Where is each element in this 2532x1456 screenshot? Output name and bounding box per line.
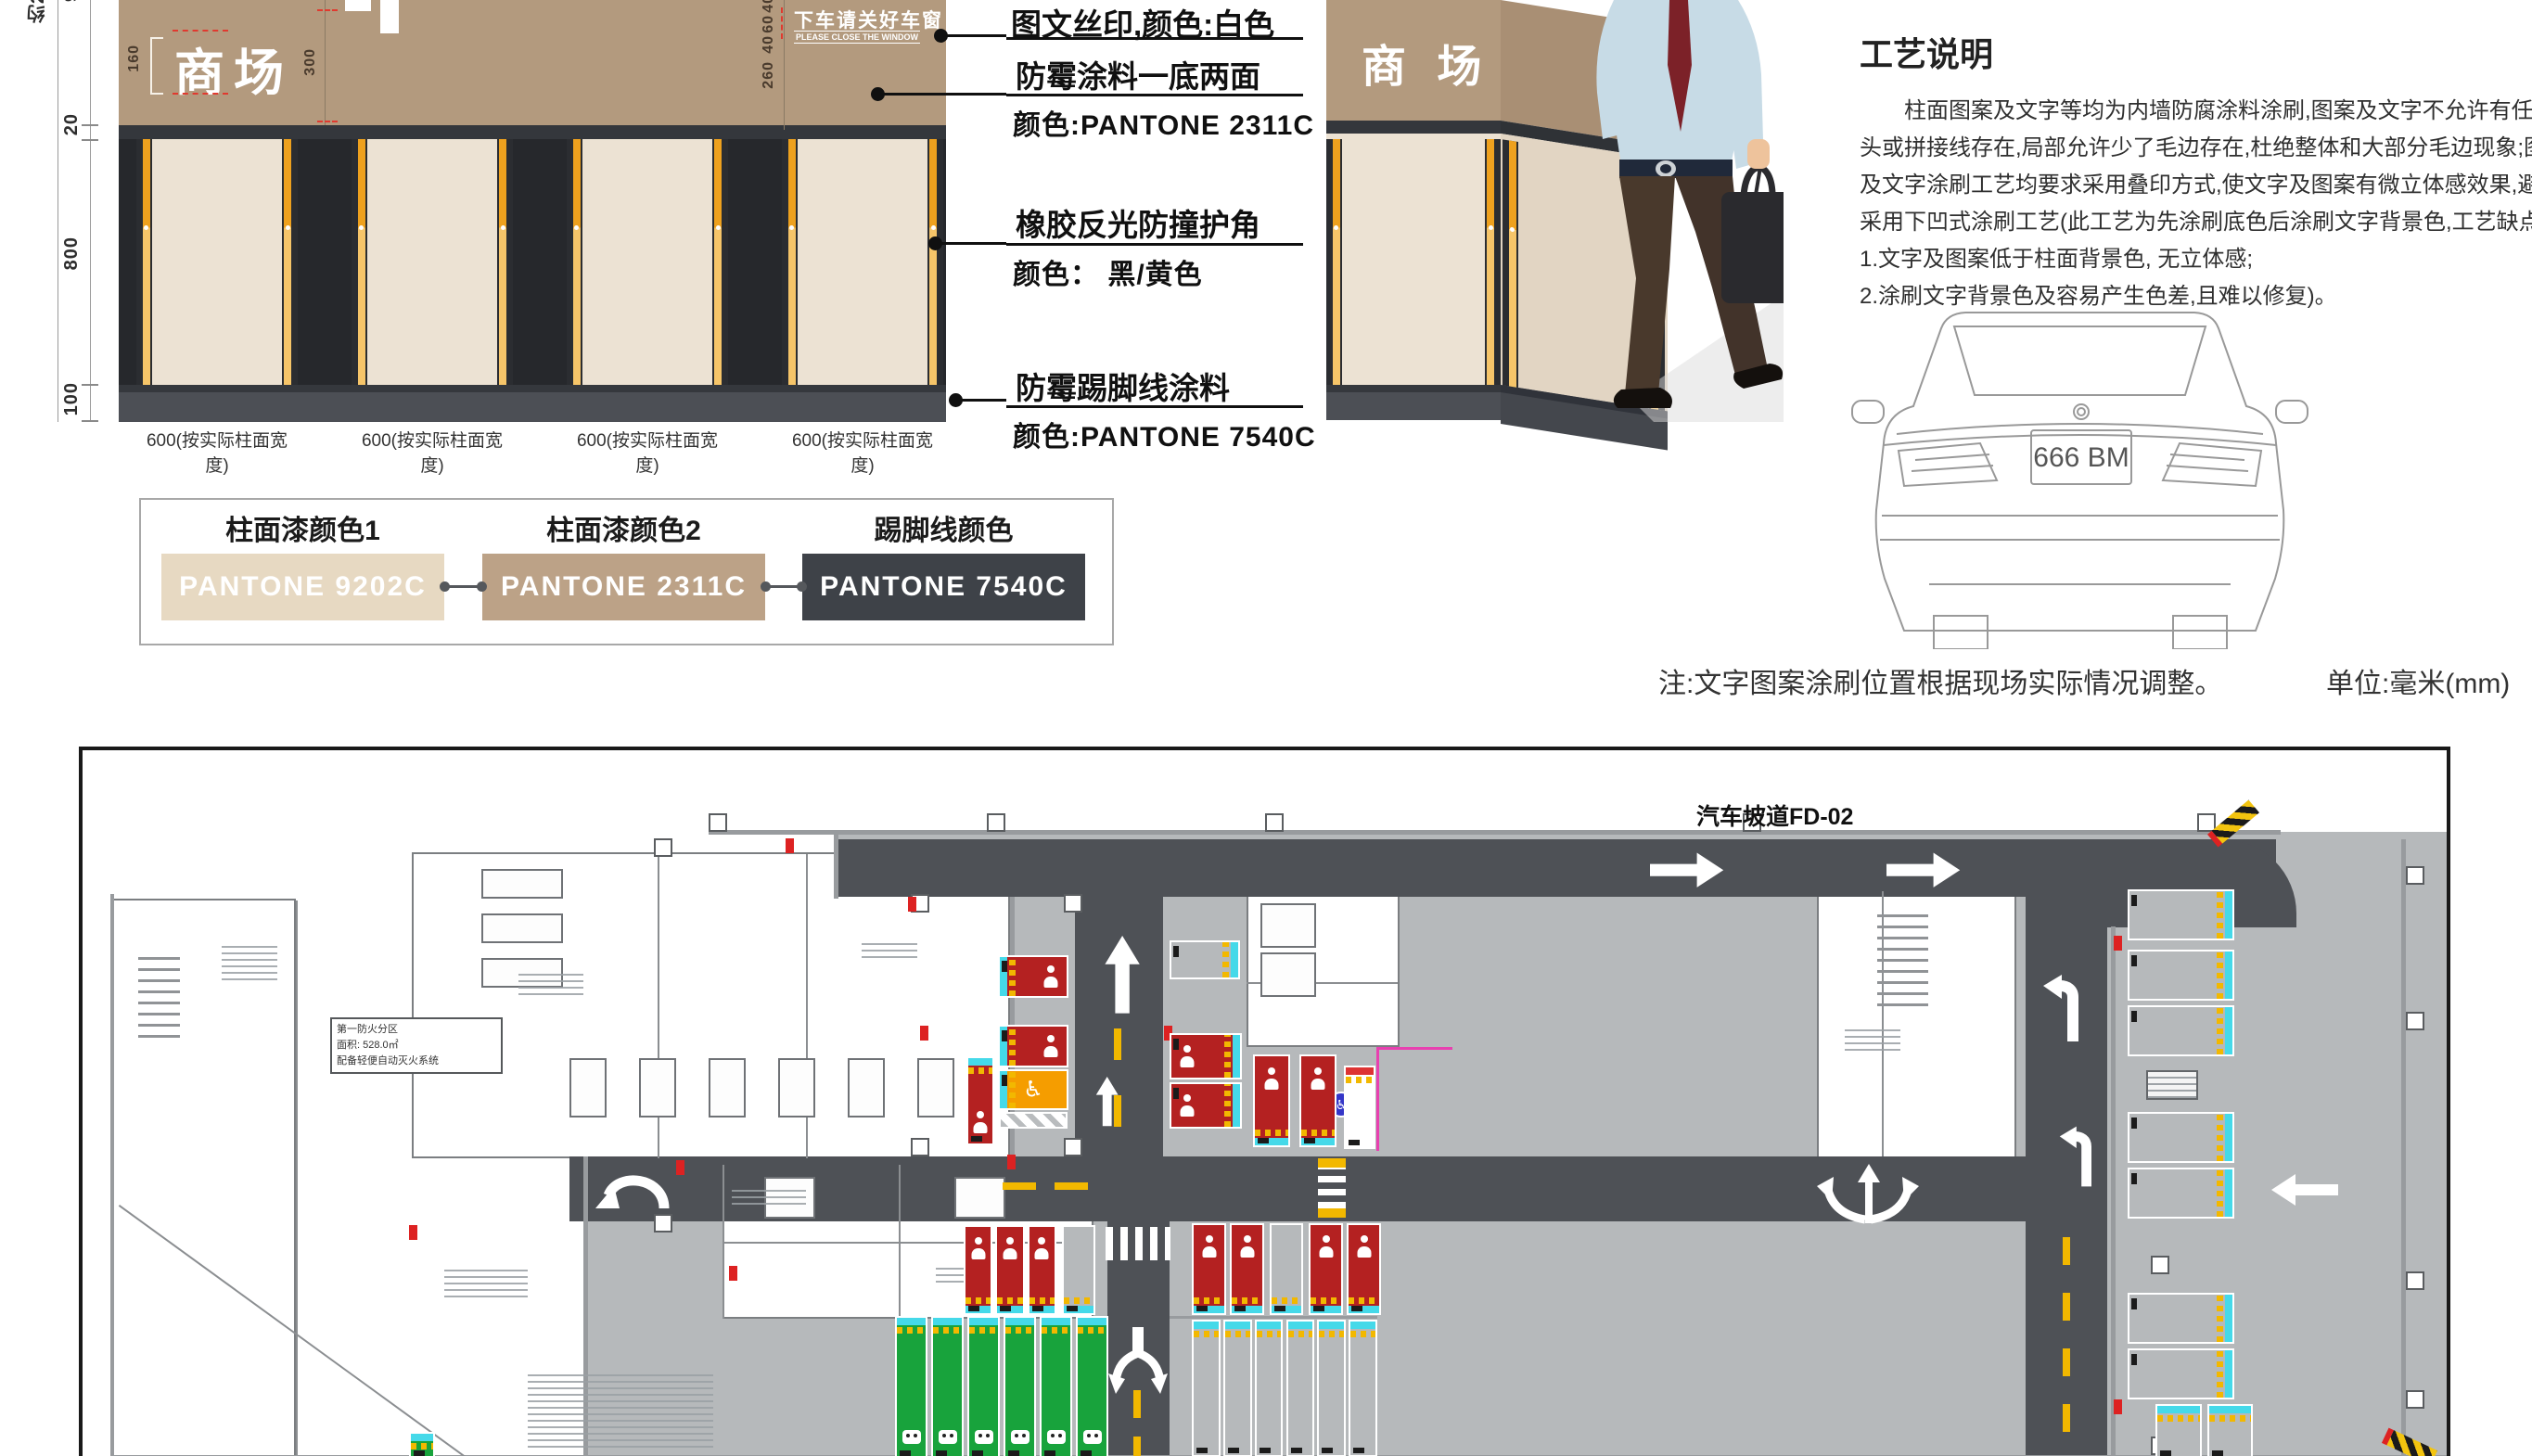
swatch-connector-dot (477, 581, 487, 592)
swatch-connector-dot (797, 581, 807, 592)
leader-line (940, 34, 1006, 37)
car-deck-line (1897, 424, 2263, 434)
corner-guard (282, 139, 298, 385)
corner-guard (927, 139, 943, 385)
corner-guard (1485, 139, 1501, 385)
process-note-line: 头或拼接线存在,局部允许少了毛边存在,杜绝整体和大部分毛边现象;图 (1860, 130, 2532, 167)
dim-line-sign (784, 0, 785, 130)
road-arrow-right (1650, 853, 1723, 888)
leader-line (935, 242, 1006, 245)
cut-glyph (380, 0, 399, 33)
car-rear-window (1954, 326, 2206, 395)
close-window-sign-en: PLEASE CLOSE THE WINDOW (794, 31, 920, 44)
corner-guard (567, 139, 582, 385)
car-mirror-right (2276, 401, 2308, 423)
leader-line (955, 399, 1006, 402)
dim-total: 约2 (24, 0, 51, 23)
red-guide-mark (317, 9, 338, 11)
column-face (567, 139, 728, 385)
dim-line-outer (58, 0, 58, 422)
car-mirror-left (1852, 401, 1884, 423)
process-note-line: 柱面图案及文字等均为内墙防腐涂料涂刷,图案及文字不允许有任何 (1860, 93, 2532, 130)
dim-tick (82, 384, 98, 386)
swatch-pantone-9202c: PANTONE 9202C (161, 554, 444, 620)
callout-rubber-guard: 橡胶反光防撞护角 (1016, 200, 1260, 245)
callout-antimold-paint: 防霉涂料一底两面 (1016, 52, 1260, 96)
callout-rule (1006, 243, 1303, 246)
callout-rule (1006, 37, 1303, 40)
width-label: 600(按实际柱面宽度) (782, 427, 943, 477)
corner-guard (136, 139, 152, 385)
road-arrow-uleft (595, 1181, 664, 1208)
design-sheet: 约2 9 20 800 100 商场 160 300 (0, 0, 2532, 1456)
unit-note: 单位:毫米(mm) (2326, 660, 2510, 701)
car-taillight-right (2163, 443, 2261, 486)
process-note-line: 1.文字及图案低于柱面背景色, 无立体感; (1860, 241, 2532, 278)
road-arrow-right (1886, 853, 1960, 888)
swatch-connector-dot (761, 581, 771, 592)
dim-260: 260 (761, 61, 777, 89)
swatch-pantone-7540c: PANTONE 7540C (802, 554, 1085, 620)
corner-guard (712, 139, 728, 385)
callout-skirting-paint: 防霉踢脚线涂料 (1016, 364, 1230, 408)
dim-900: 9 (61, 0, 83, 2)
road-arrow-upleft (2060, 1127, 2087, 1187)
swatch-connector-dot (440, 581, 450, 592)
car-taillight-left (1899, 443, 1997, 486)
road-arrow-up (1096, 1077, 1119, 1126)
width-label: 600(按实际柱面宽度) (567, 427, 728, 477)
dim-line-300 (325, 0, 326, 125)
corner-guard (352, 139, 367, 385)
dim-tick (82, 139, 98, 141)
corner-face-front (1326, 134, 1501, 385)
parking-floor-plan: ♿♿汽车坡道FD-02第一防火分区面积: 528.0㎡配备轻便自动灭火系统 (79, 747, 2450, 1456)
belt-buckle-inner (1660, 164, 1671, 173)
car-emblem-inner (2078, 408, 2085, 415)
column-face (136, 139, 298, 385)
swatch-title-2: 柱面漆颜色2 (482, 507, 765, 548)
process-note-line: 及文字涂刷工艺均要求采用叠印方式,使文字及图案有微立体感效果,避 (1860, 167, 2532, 204)
road-arrow-forkdown (1108, 1327, 1168, 1394)
callout-rule (1006, 405, 1303, 408)
dim-60: 60 (761, 15, 777, 33)
road-arrow-upleft (2043, 975, 2073, 1041)
red-guide-mark (173, 93, 228, 95)
callout-rubber-color: 颜色： 黑/黄色 (1013, 251, 1203, 292)
mall-label-corner: 商 场 (1362, 30, 1490, 95)
car-wheel-left (1934, 616, 1988, 649)
process-note-line: 采用下凹式涂刷工艺(此工艺为先涂刷底色后涂刷文字背景色,工艺缺点: (1860, 204, 2532, 241)
dim-40b: 40 (761, 35, 777, 54)
car-bumper-lines (1880, 516, 2280, 584)
person-left-leg (1619, 176, 1675, 394)
dim-tick (82, 124, 98, 126)
close-window-sign-cn: 下车请关好车窗 (794, 6, 943, 33)
corner-skirt-front (1326, 385, 1501, 420)
adjustment-note: 注:文字图案涂刷位置根据现场实际情况调整。 (1658, 660, 2222, 701)
process-notes: 工艺说明 柱面图案及文字等均为内墙防腐涂料涂刷,图案及文字不允许有任何 头或拼接… (1860, 28, 2532, 315)
cut-glyph (345, 0, 371, 11)
dim-300: 300 (302, 48, 319, 76)
callout-skirting-color: 颜色:PANTONE 7540C (1013, 414, 1316, 454)
band-separator (119, 125, 946, 139)
road-arrows (83, 750, 2450, 1456)
width-label: 600(按实际柱面宽度) (136, 427, 298, 477)
corner-band-sep (1326, 121, 1501, 134)
road-arrow-up (1105, 936, 1139, 1014)
dim-tick (82, 420, 98, 422)
callout-rule (1006, 94, 1303, 96)
car-wheel-right (2173, 616, 2227, 649)
person-hand (1747, 139, 1770, 169)
car-emblem (2074, 404, 2089, 419)
pedestrian-illustration (1566, 0, 1784, 422)
column-elevation-front: 商场 160 300 下车请关好车窗 PLEASE CLOSE THE WIND… (119, 0, 946, 422)
dim-160: 160 (126, 45, 143, 72)
license-plate-text: 666 BM (2033, 442, 2129, 473)
column-face (782, 139, 943, 385)
swatch-title-3: 踢脚线颜色 (802, 507, 1085, 548)
corner-guard (1503, 139, 1518, 388)
process-notes-heading: 工艺说明 (1860, 28, 2532, 76)
red-guide-mark (317, 121, 338, 122)
width-label: 600(按实际柱面宽度) (352, 427, 513, 477)
red-guide-mark (781, 7, 783, 39)
car-rear-drawing: 666 BM (1841, 304, 2319, 649)
red-guide-mark (173, 30, 228, 32)
dim-100: 100 (61, 382, 83, 415)
column-face (352, 139, 513, 385)
person-left-shoe (1614, 388, 1672, 408)
leader-line (877, 93, 1006, 96)
corner-guard (1326, 139, 1342, 385)
dim-line-inner (90, 0, 91, 422)
color-legend-panel: 柱面漆颜色1 柱面漆颜色2 踢脚线颜色 PANTONE 9202C PANTON… (139, 498, 1114, 645)
dim-800: 800 (61, 236, 83, 270)
corner-guard (497, 139, 513, 385)
dim-bracket-160 (150, 37, 163, 95)
skirting-line (119, 385, 946, 422)
road-arrow-trident (1817, 1164, 1919, 1223)
swatch-title-1: 柱面漆颜色1 (161, 507, 444, 548)
dim-20: 20 (61, 113, 83, 135)
corner-guard (782, 139, 798, 385)
dim-40a: 40 (761, 0, 777, 13)
callout-antimold-color: 颜色:PANTONE 2311C (1013, 102, 1314, 143)
road-arrow-left (2271, 1174, 2338, 1206)
swatch-pantone-2311c: PANTONE 2311C (482, 554, 765, 620)
briefcase (1721, 192, 1784, 303)
